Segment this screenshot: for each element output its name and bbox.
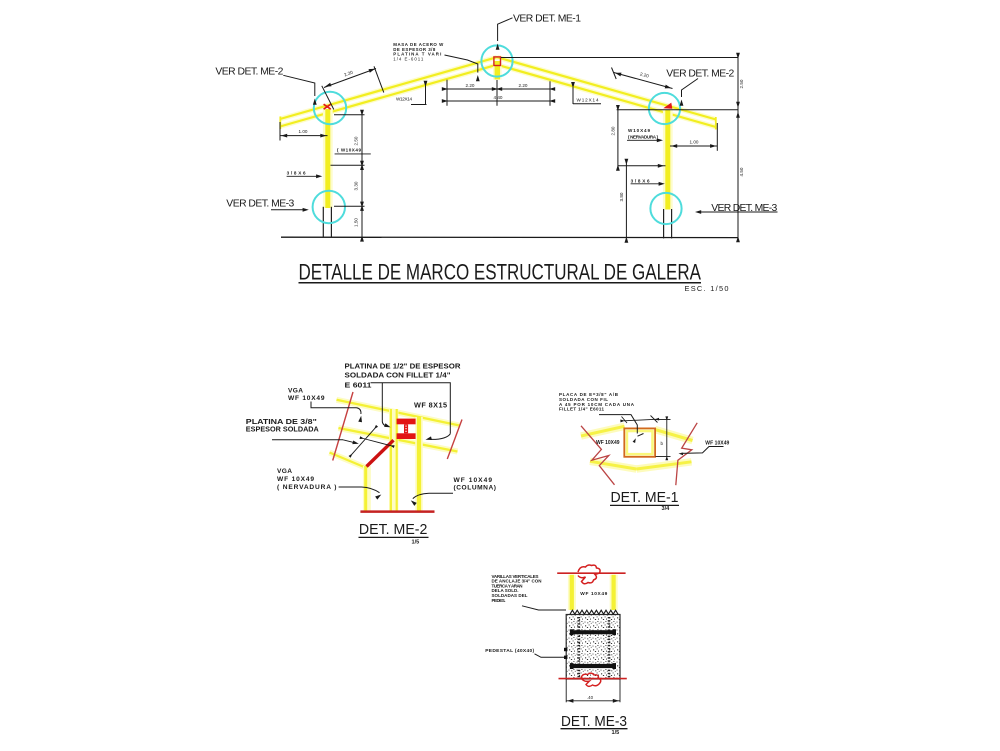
svg-text:2.50: 2.50 [354,136,359,145]
svg-text:SOLDADA CON FILLET 1/4": SOLDADA CON FILLET 1/4" [345,371,451,380]
svg-text:2.20: 2.20 [466,83,475,88]
svg-text:WF 10X49: WF 10X49 [580,591,607,597]
svg-text:ESC. 1/50: ESC. 1/50 [685,284,729,293]
svg-text:4.50: 4.50 [739,167,744,176]
svg-text:WF 10X49: WF 10X49 [705,441,729,447]
svg-text:WF 10X49: WF 10X49 [288,395,325,402]
svg-text:VER DET. ME-3: VER DET. ME-3 [226,199,294,210]
svg-text:( NERVADURA ): ( NERVADURA ) [628,135,658,140]
svg-text:PEDESTAL (40X40): PEDESTAL (40X40) [485,648,534,654]
svg-text:ESPESOR SOLDADA: ESPESOR SOLDADA [246,425,320,434]
svg-text:1/5: 1/5 [612,730,620,736]
svg-text:PEDES.: PEDES. [492,598,506,603]
svg-text:.40: .40 [587,695,594,700]
svg-text:WF 10X49: WF 10X49 [596,440,620,446]
svg-text:VER DET. ME-3: VER DET. ME-3 [711,203,777,214]
svg-text:3/4: 3/4 [662,506,671,512]
svg-text:2.50: 2.50 [739,79,744,88]
svg-text:DET. ME-1: DET. ME-1 [611,490,679,506]
svg-text:b: b [661,441,664,446]
svg-text:2.80: 2.80 [611,126,616,135]
svg-text:1.50: 1.50 [354,218,359,227]
svg-text:PLATINA DE 1/2" DE ESPESOR: PLATINA DE 1/2" DE ESPESOR [345,361,462,370]
svg-text:2.20: 2.20 [639,71,649,78]
svg-text:W10X49: W10X49 [628,128,650,133]
svg-text:WF 8X15: WF 8X15 [414,401,447,410]
svg-text:( NERVADURA ): ( NERVADURA ) [277,484,337,491]
svg-text:VER DET. ME-2: VER DET. ME-2 [215,67,283,78]
svg-text:DET. ME-3: DET. ME-3 [561,714,627,730]
svg-text:W12X14: W12X14 [577,98,599,103]
svg-text:1/5: 1/5 [412,539,420,545]
svg-text:VGA: VGA [288,388,303,395]
svg-text:FILLET 1/4" E6011: FILLET 1/4" E6011 [559,407,604,412]
svg-text:WF 10X49: WF 10X49 [277,476,314,483]
svg-text:1.00: 1.00 [690,140,699,145]
svg-text:4.40: 4.40 [494,95,503,100]
svg-text:( W10X49: ( W10X49 [337,148,361,153]
svg-text:3/8X6: 3/8X6 [287,170,306,175]
svg-text:DET. ME-2: DET. ME-2 [359,522,428,538]
svg-text:VER DET. ME-1: VER DET. ME-1 [513,13,581,24]
svg-text:3/8X6: 3/8X6 [631,179,650,184]
svg-text:1.00: 1.00 [299,129,308,134]
svg-text:E 6011: E 6011 [345,380,372,389]
svg-text:WF 10X49: WF 10X49 [454,477,493,484]
svg-text:2.20: 2.20 [519,83,528,88]
svg-text:2.20: 2.20 [343,70,354,78]
svg-text:VGA: VGA [277,468,292,475]
svg-text:3.30: 3.30 [354,181,359,190]
svg-text:VER DET. ME-2: VER DET. ME-2 [666,68,734,79]
svg-text:(COLUMNA): (COLUMNA) [454,484,497,491]
svg-text:DETALLE DE MARCO ESTRUCTURAL D: DETALLE DE MARCO ESTRUCTURAL DE GALERA [299,260,702,285]
svg-text:1/4 E-6011: 1/4 E-6011 [393,56,424,61]
svg-text:3.80: 3.80 [619,192,624,201]
svg-text:W12X14: W12X14 [396,97,412,102]
